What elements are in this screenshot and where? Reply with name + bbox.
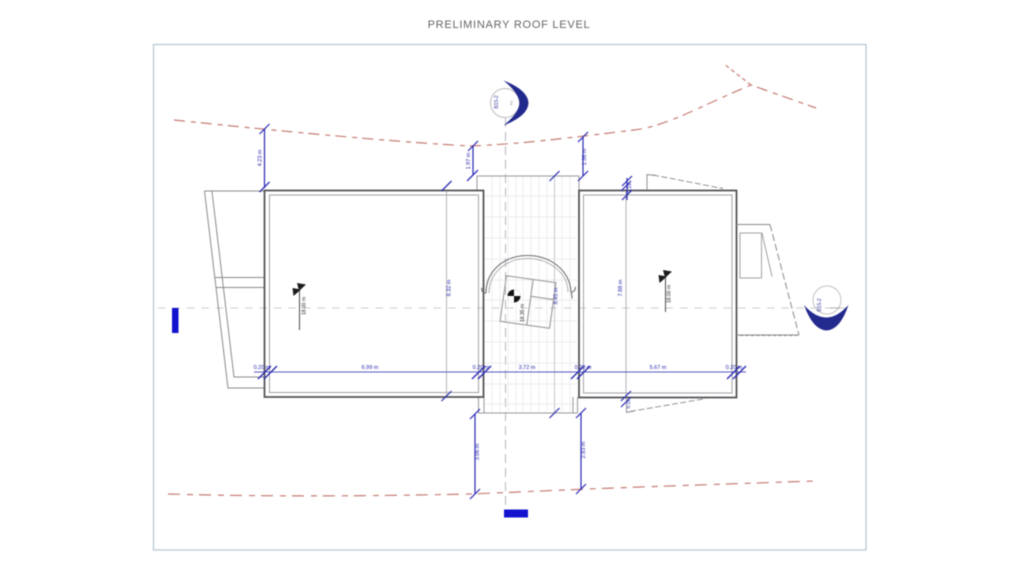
svg-text:4.23 m: 4.23 m [258,149,264,166]
svg-text:2: 2 [510,101,513,107]
svg-text:8.32 m: 8.32 m [447,279,453,296]
svg-text:B15-2: B15-2 [817,298,823,312]
svg-text:2.83 m: 2.83 m [581,441,587,458]
svg-text:18.00 m: 18.00 m [667,285,673,303]
svg-text:B15-2: B15-2 [494,95,500,109]
svg-text:1.36 m: 1.36 m [582,148,588,165]
svg-text:0.20 m: 0.20 m [254,365,271,371]
svg-text:5.67 m: 5.67 m [650,365,667,371]
svg-text:PRELIMINARY ROOF LEVEL: PRELIMINARY ROOF LEVEL [428,19,591,31]
svg-text:3.72 m: 3.72 m [519,365,536,371]
svg-text:6.99 m: 6.99 m [362,365,379,371]
svg-text:7.88 m: 7.88 m [618,279,624,296]
svg-text:1.97 m: 1.97 m [466,152,472,169]
svg-text:0.20 m: 0.20 m [473,365,490,371]
svg-text:3.06 m: 3.06 m [475,443,481,460]
svg-text:18.00 m: 18.00 m [302,297,308,315]
svg-text:0.20 m: 0.20 m [575,365,592,371]
svg-text:8.45 m: 8.45 m [554,287,560,304]
svg-text:0.18: 0.18 [626,399,631,408]
svg-text:0.20 m: 0.20 m [726,365,743,371]
svg-text:18.35 m: 18.35 m [520,304,526,322]
